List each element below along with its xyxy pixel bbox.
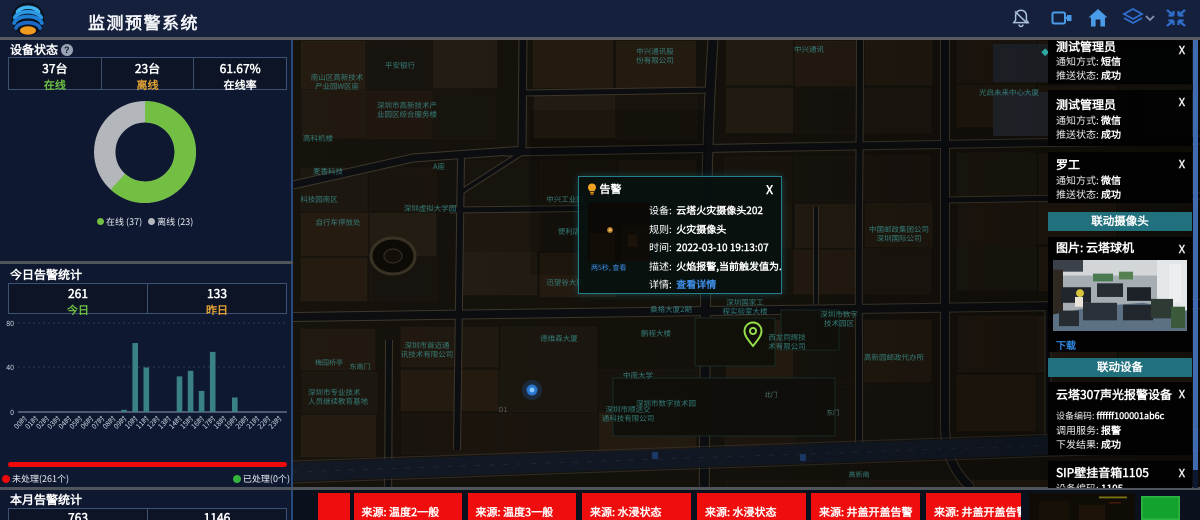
svg-text:0: 0 <box>10 408 14 418</box>
svg-text:德维森大厦: 德维森大厦 <box>540 333 578 344</box>
svg-text:23时: 23时 <box>267 414 285 432</box>
svg-text:平安银行: 平安银行 <box>385 60 415 71</box>
svg-text:东南门: 东南门 <box>350 362 371 372</box>
svg-text:西龙同辉技术有限公司: 西龙同辉技术有限公司 <box>768 332 806 352</box>
svg-text:深圳市顺送交通科技有限公司: 深圳市顺送交通科技有限公司 <box>602 404 655 424</box>
svg-text:自行车停放处: 自行车停放处 <box>316 217 361 228</box>
svg-text:深圳市首迈通讯技术有限公司: 深圳市首迈通讯技术有限公司 <box>401 340 454 360</box>
svg-text:80: 80 <box>6 319 14 329</box>
svg-text:桑格大厦2期: 桑格大厦2期 <box>650 304 692 315</box>
svg-text:深圳市高新技术产业园区综合服务楼: 深圳市高新技术产业园区综合服务楼 <box>377 100 437 120</box>
svg-text:高科机楼: 高科机楼 <box>303 133 333 144</box>
svg-text:高新园邮政代办所: 高新园邮政代办所 <box>864 352 924 363</box>
svg-text:中南大学: 中南大学 <box>623 370 653 381</box>
svg-text:科技园南区: 科技园南区 <box>300 194 338 205</box>
svg-text:40: 40 <box>6 363 14 373</box>
svg-text:深圳市数字技术园区: 深圳市数字技术园区 <box>820 309 858 329</box>
svg-text:中兴通讯: 中兴通讯 <box>794 44 824 55</box>
svg-text:南山区高新技术产业园W区座: 南山区高新技术产业园W区座 <box>311 72 364 92</box>
svg-text:光启未来中心大厦: 光启未来中心大厦 <box>979 87 1039 98</box>
svg-text:梅园桥亭: 梅园桥亭 <box>315 358 343 368</box>
svg-text:高新南: 高新南 <box>849 470 870 480</box>
svg-text:中国邮政集团公司深圳国际公司: 中国邮政集团公司深圳国际公司 <box>869 224 929 244</box>
svg-text:深圳市专业技术人员继续教育基地: 深圳市专业技术人员继续教育基地 <box>308 387 368 407</box>
svg-text:东门: 东门 <box>827 407 840 417</box>
svg-text:麦香科技: 麦香科技 <box>313 166 343 177</box>
svg-text:D1: D1 <box>499 405 508 415</box>
svg-text:A座: A座 <box>433 161 446 172</box>
svg-text:深圳虚拟大学园: 深圳虚拟大学园 <box>404 203 457 214</box>
svg-text:鹏程大楼: 鹏程大楼 <box>641 328 671 339</box>
svg-text:中兴通讯股份有限公司: 中兴通讯股份有限公司 <box>636 46 674 66</box>
svg-text:北门: 北门 <box>765 389 778 399</box>
svg-text:深圳国家工程实验室大楼: 深圳国家工程实验室大楼 <box>723 297 768 317</box>
